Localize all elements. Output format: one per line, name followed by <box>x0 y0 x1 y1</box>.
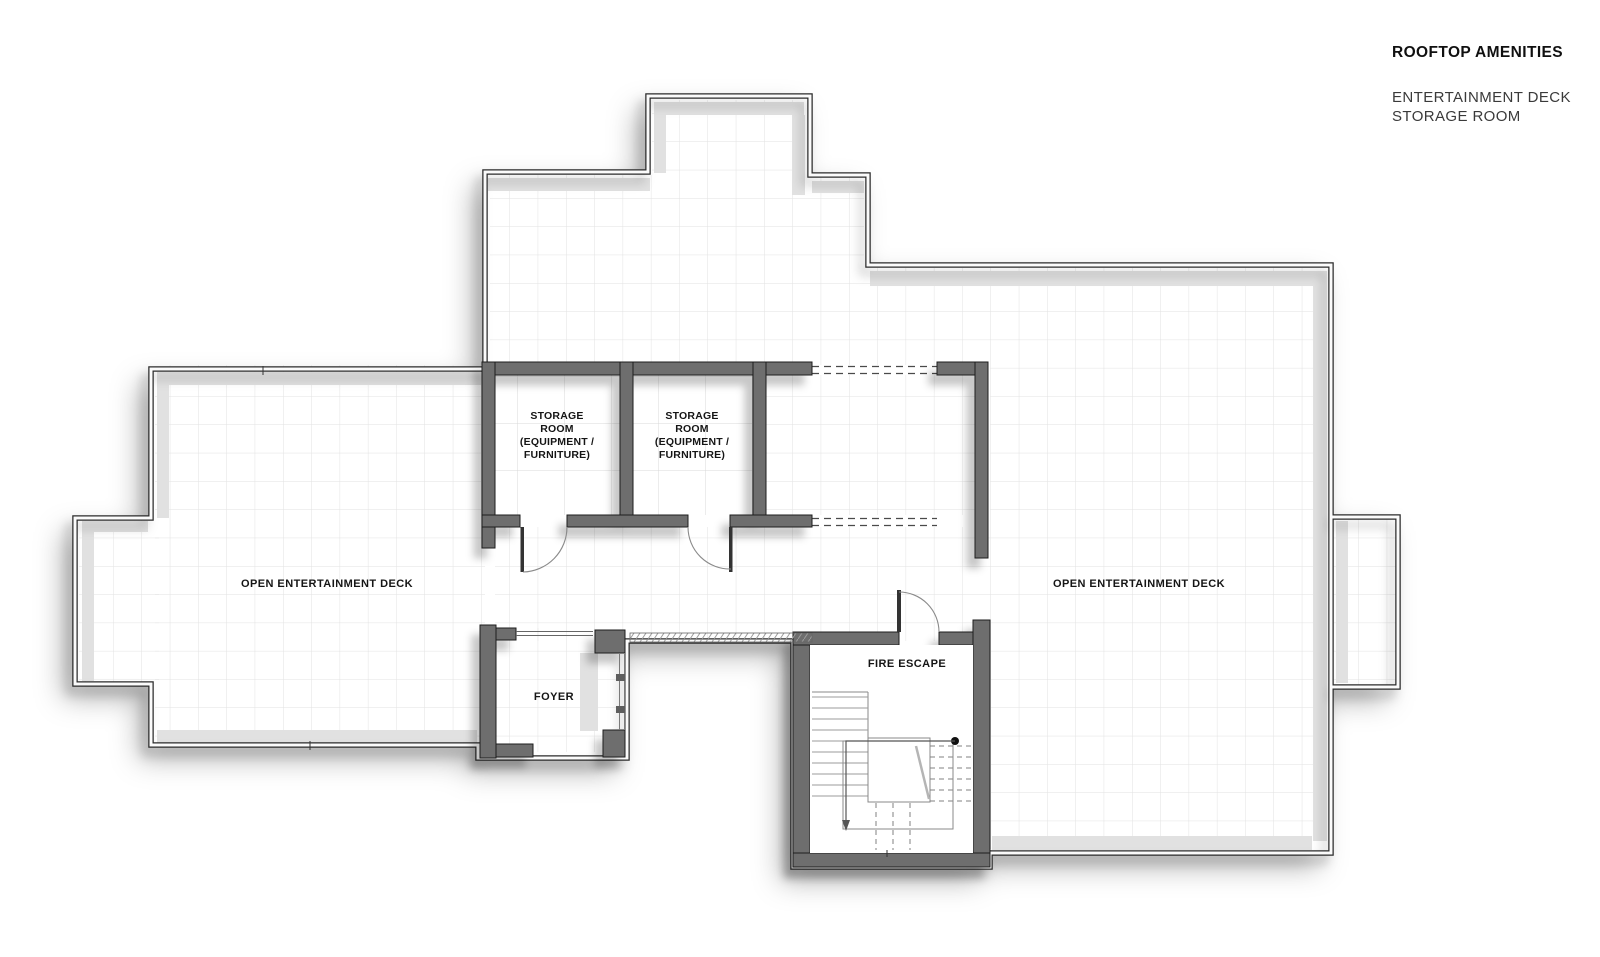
wall-storage-bottom-right <box>730 515 812 527</box>
label-line: STORAGE <box>655 410 729 423</box>
label-fire-escape: FIRE ESCAPE <box>868 658 946 670</box>
label-line: FURNITURE) <box>655 449 729 462</box>
fire-escape-door-leaf <box>897 590 901 632</box>
floor-plan-canvas <box>0 0 1600 957</box>
label-line: (EQUIPMENT / <box>520 436 594 449</box>
sheet-subtitle: ENTERTAINMENT DECK STORAGE ROOM <box>1392 88 1571 126</box>
wall-fire-escape-left <box>793 632 810 867</box>
sheet-subtitle-line-1: ENTERTAINMENT DECK <box>1392 88 1571 107</box>
walkway-curb-hatch <box>630 633 812 642</box>
wall-fire-escape-bottom <box>793 853 990 867</box>
wall-foyer-top-stub <box>496 628 516 640</box>
floor-plan-page: OPEN ENTERTAINMENT DECK OPEN ENTERTAINME… <box>0 0 1600 957</box>
title-block: ROOFTOP AMENITIES ENTERTAINMENT DECK STO… <box>1392 44 1571 126</box>
wall-foyer-right-top <box>595 630 625 653</box>
storage-1-door-leaf <box>521 527 525 572</box>
sheet-subtitle-line-2: STORAGE ROOM <box>1392 107 1571 126</box>
wall-storage-divider-1 <box>620 362 633 515</box>
wall-foyer-right-bottom <box>603 730 625 757</box>
wall-storage-bottom-stub-1 <box>482 515 520 527</box>
label-line: (EQUIPMENT / <box>655 436 729 449</box>
label-line: ROOM <box>520 423 594 436</box>
floor-corridor <box>495 527 990 641</box>
wall-storage-divider-2 <box>753 362 766 527</box>
label-storage-room-2: STORAGE ROOM (EQUIPMENT / FURNITURE) <box>655 410 729 462</box>
storage-2-door-leaf <box>729 527 733 572</box>
floor-future-room <box>766 375 975 515</box>
sheet-title: ROOFTOP AMENITIES <box>1392 44 1571 62</box>
label-line: ROOM <box>655 423 729 436</box>
floor-left-deck <box>155 365 485 746</box>
wall-future-right <box>975 362 988 558</box>
label-foyer: FOYER <box>534 691 574 703</box>
label-left-deck: OPEN ENTERTAINMENT DECK <box>241 578 413 590</box>
door-hinge-icon <box>616 674 625 681</box>
label-line: STORAGE <box>520 410 594 423</box>
door-hinge-icon <box>616 706 625 713</box>
label-right-deck: OPEN ENTERTAINMENT DECK <box>1053 578 1225 590</box>
wall-fire-escape-right <box>973 620 990 867</box>
wall-foyer-bottom-stub <box>496 744 533 757</box>
label-storage-room-1: STORAGE ROOM (EQUIPMENT / FURNITURE) <box>520 410 594 462</box>
wall-storage-bottom-mid <box>567 515 688 527</box>
label-line: FURNITURE) <box>520 449 594 462</box>
wall-foyer-left <box>480 625 496 758</box>
floor-right-deck <box>990 365 1327 849</box>
floor-upper-deck <box>490 175 864 365</box>
fire-escape-stairs <box>810 645 973 853</box>
